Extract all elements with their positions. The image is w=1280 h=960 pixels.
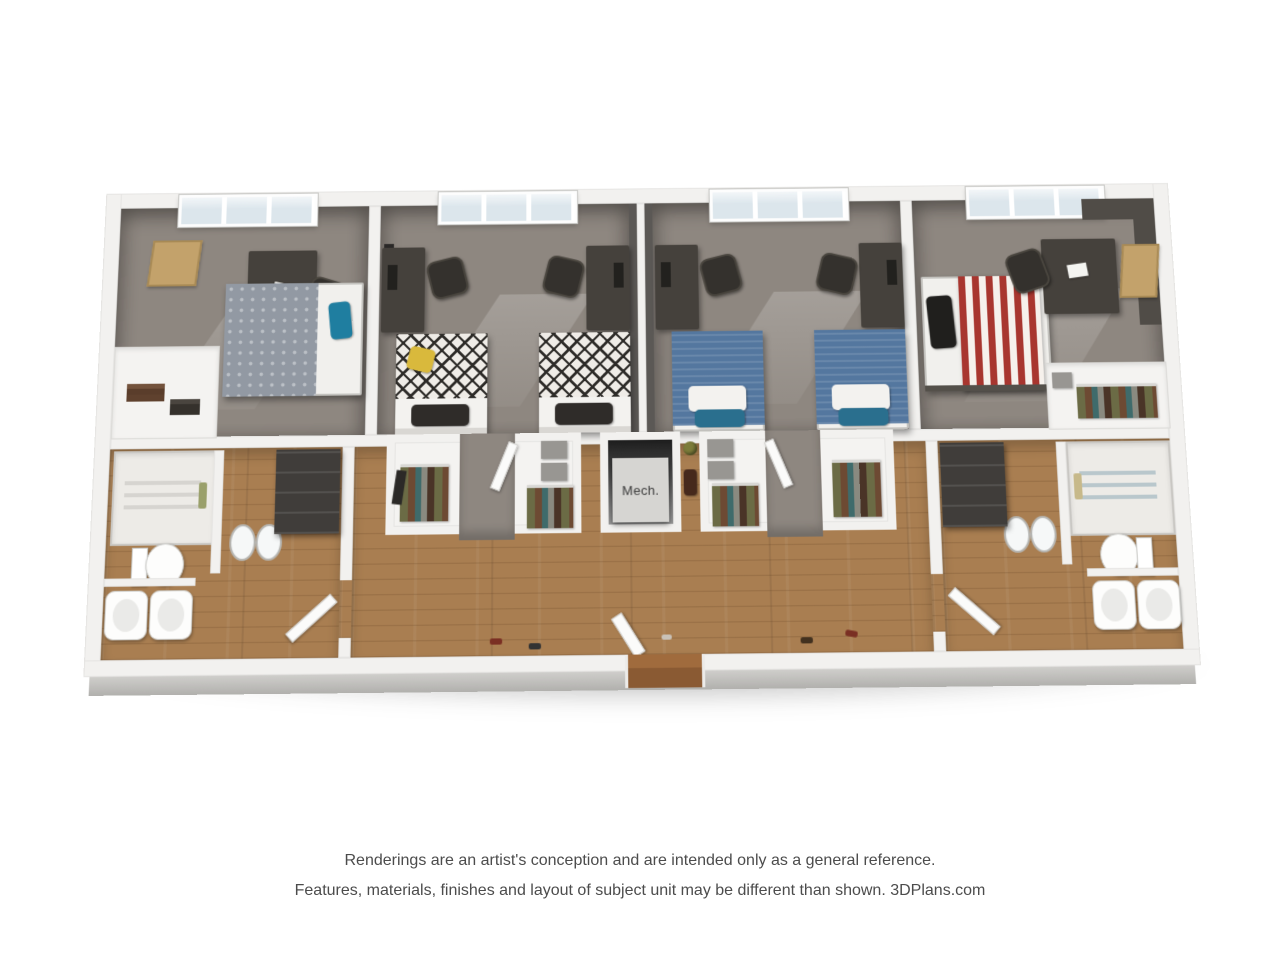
bedroom-1-teal-pillow	[328, 301, 353, 340]
bedroom-1-corkboard	[147, 240, 203, 286]
vestibule-3-closet-clothes	[832, 459, 882, 517]
storage-box	[541, 463, 567, 481]
bathroom-right-door-opening	[931, 574, 946, 632]
bedroom-1-bed-blanket	[222, 283, 318, 397]
desk-monitor	[387, 265, 397, 290]
desk-monitor	[661, 262, 671, 287]
bathroom-left-sink	[103, 591, 148, 641]
mech-label-panel: Mech.	[612, 458, 669, 523]
shower-bench-line	[124, 493, 201, 498]
bathroom-left-vanity-wall	[104, 578, 196, 587]
sink-basin	[112, 599, 140, 632]
shoes	[490, 638, 502, 644]
sink-basin	[157, 598, 185, 631]
storage-box	[541, 441, 567, 459]
bedroom-3-desk-right	[858, 243, 904, 328]
shoes	[662, 634, 672, 639]
storage-box	[708, 461, 734, 479]
bathroom-right-sink	[1092, 580, 1138, 630]
storage-box	[1052, 372, 1073, 388]
floorplan-rendering: Mech.	[0, 0, 1280, 960]
bedroom-3-desk-left	[655, 245, 700, 330]
bedroom-1-window	[178, 194, 318, 228]
bathroom-right-cabinet	[939, 442, 1007, 527]
shoes	[801, 637, 813, 643]
unit-floorplan: Mech.	[82, 183, 1202, 696]
green-towel	[198, 482, 207, 508]
bathroom-left-sink	[148, 590, 193, 640]
mech-label: Mech.	[622, 482, 659, 497]
hanging-clothes	[1076, 383, 1158, 418]
folded-clothes	[126, 384, 165, 402]
disclaimer-line-1: Renderings are an artist's conception an…	[0, 852, 1280, 870]
bedroom-2-bed-right-pillow	[555, 403, 613, 425]
shower-bench-line	[1081, 495, 1158, 500]
bedroom-2-desk-left	[381, 247, 426, 332]
shower-bench-line	[1079, 470, 1156, 475]
shower-bench-line	[1080, 483, 1157, 488]
bedroom-2-desk-right	[586, 245, 630, 330]
sink-basin	[1145, 588, 1174, 621]
vestibule-2-closet-clothes	[400, 464, 449, 522]
laptop	[1067, 262, 1089, 278]
folded-clothes	[170, 399, 201, 415]
shoes	[529, 643, 541, 649]
bedroom-2-window	[438, 191, 577, 225]
disclaimer-line-2: Features, materials, finishes and layout…	[0, 882, 1280, 900]
bathroom-right-sink	[1136, 580, 1182, 630]
bedroom-3-bed-right-pillow	[832, 384, 891, 410]
bedroom-3-bed-left-pillow	[688, 385, 746, 411]
vestibule-2-closet-clothes	[527, 485, 573, 529]
sink-basin	[1100, 588, 1128, 621]
bathroom-left-door-opening	[339, 580, 352, 638]
tan-towel	[1073, 473, 1083, 499]
storage-box	[707, 439, 733, 457]
bedroom-2-bed-left-pillow	[411, 404, 469, 426]
entry-door	[625, 654, 705, 688]
shower-bench-line	[125, 480, 202, 485]
decor-vase	[683, 441, 697, 455]
bedroom-3-teal-pillow	[695, 409, 745, 427]
shower-bench-line	[124, 505, 201, 510]
desk-monitor	[614, 263, 624, 288]
bathroom-left-cabinet	[274, 449, 341, 534]
bedroom-4-striped-blanket	[958, 276, 1045, 391]
bedroom-3-teal-pillow	[838, 408, 889, 426]
vestibule-3-closet-clothes	[712, 483, 759, 527]
desk-monitor	[887, 260, 898, 285]
bedroom-3-window	[710, 188, 849, 222]
decor-bottle	[684, 469, 697, 495]
bathroom-right-vanity-wall	[1087, 567, 1179, 576]
bedroom-2-bed-right-blanket	[539, 332, 631, 398]
bedroom-4-corkboard	[1120, 244, 1160, 298]
